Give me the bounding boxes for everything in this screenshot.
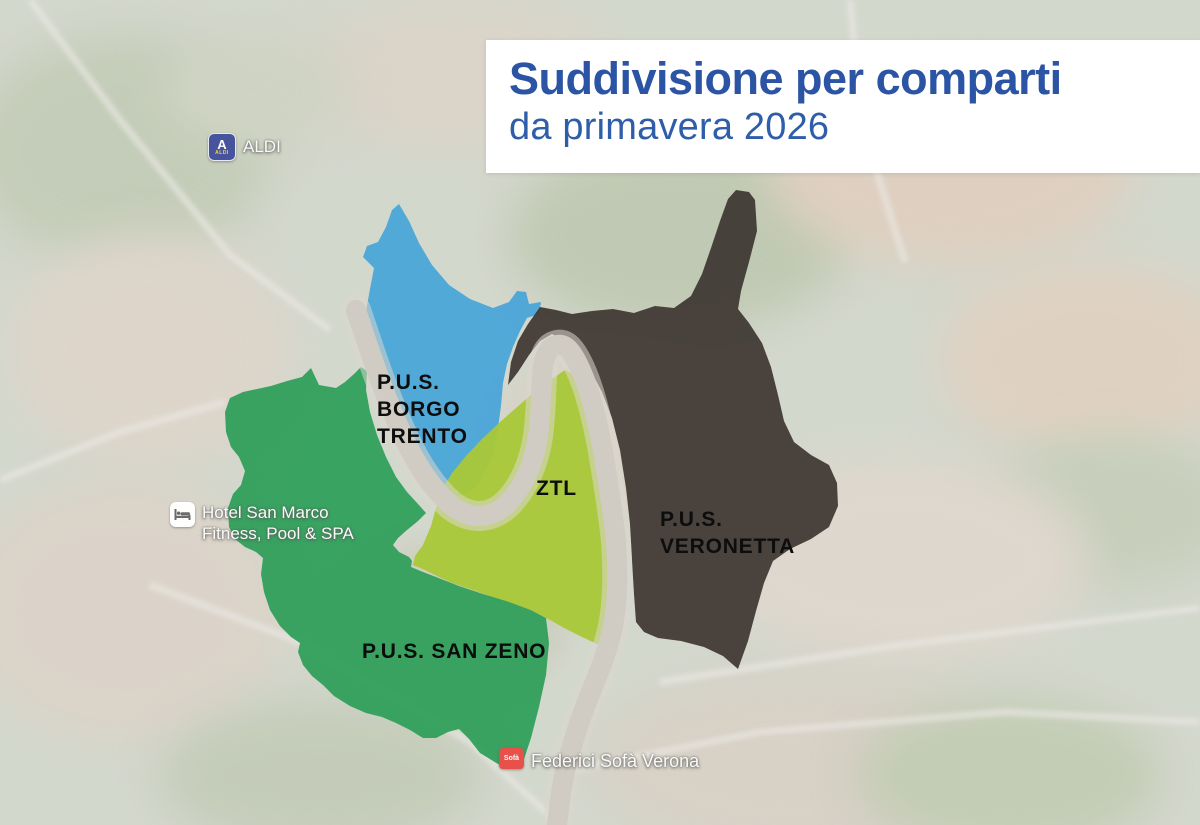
zone-label-ztl: ZTL [536,475,577,502]
zone-label-san-zeno: P.U.S. SAN ZENO [362,638,546,665]
title-card: Suddivisione per comparti da primavera 2… [486,40,1200,173]
zone-label-borgo-trento: P.U.S. BORGO TRENTO [377,369,468,450]
zone-label-line: VERONETTA [660,533,795,560]
poi-label: Federici Sofà Verona [531,751,699,772]
poi-federici-sofa: Sofà Federici Sofà Verona [499,748,699,772]
infographic-map-verona: A ALDI ALDI Hotel San Marco Fitness, Poo… [0,0,1200,825]
aldi-logo-icon: A ALDI [208,133,236,161]
sofa-store-icon: Sofà [499,748,524,769]
zone-label-line: P.U.S. SAN ZENO [362,638,546,665]
zone-label-line: TRENTO [377,423,468,450]
aldi-wordmark: ALDI [215,151,229,156]
bed-glyph [174,507,191,522]
poi-aldi: A ALDI ALDI [208,133,281,161]
poi-label-group: Hotel San Marco Fitness, Pool & SPA [195,502,354,544]
hotel-bed-icon [170,502,195,527]
poi-label: ALDI [243,136,281,157]
poi-hotel-san-marco: Hotel San Marco Fitness, Pool & SPA [170,502,354,544]
zone-label-line: BORGO [377,396,468,423]
zone-label-line: P.U.S. [377,369,468,396]
page-subtitle: da primavera 2026 [509,107,1200,149]
zone-label-line: P.U.S. [660,506,795,533]
zone-label-line: ZTL [536,475,577,502]
page-title: Suddivisione per comparti [509,54,1200,104]
sofa-icon-text: Sofà [504,755,519,762]
poi-label-line2: Fitness, Pool & SPA [202,523,354,544]
poi-label-line1: Hotel San Marco [202,502,354,523]
zone-label-veronetta: P.U.S. VERONETTA [660,506,795,560]
